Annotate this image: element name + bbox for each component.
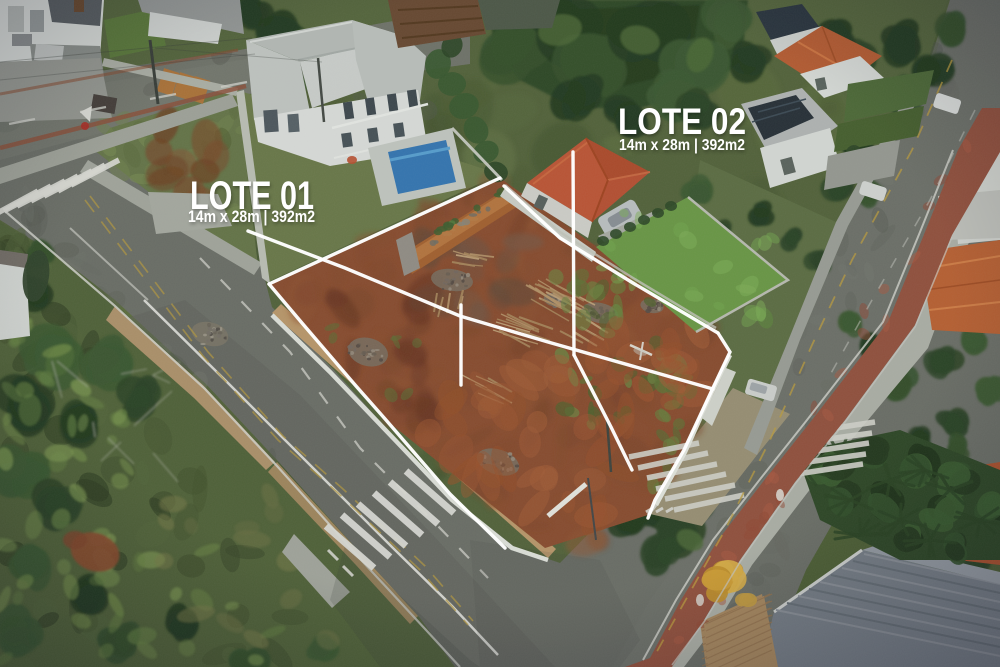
svg-text:14m x 28m | 392m2: 14m x 28m | 392m2 [619, 137, 745, 154]
svg-text:14m x 28m | 392m2: 14m x 28m | 392m2 [188, 208, 315, 226]
svg-text:LOTE 02: LOTE 02 [618, 100, 746, 142]
